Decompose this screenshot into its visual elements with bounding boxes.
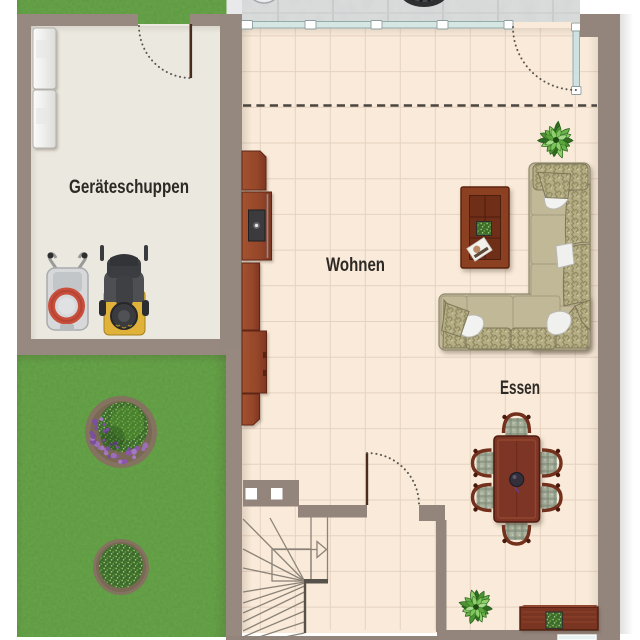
svg-text:Geräteschuppen: Geräteschuppen (69, 177, 189, 198)
svg-text:Essen: Essen (500, 378, 540, 399)
svg-text:Wohnen: Wohnen (326, 255, 385, 276)
